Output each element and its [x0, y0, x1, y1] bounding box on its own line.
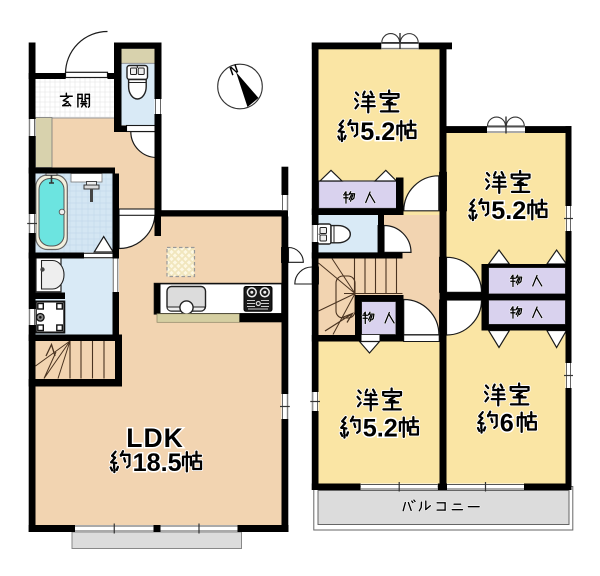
svg-text:18.5: 18.5 [133, 449, 182, 477]
svg-text:6: 6 [500, 409, 514, 437]
svg-text:5.2: 5.2 [491, 197, 526, 225]
svg-text:5.2: 5.2 [363, 414, 398, 442]
svg-text:5.2: 5.2 [360, 118, 395, 146]
